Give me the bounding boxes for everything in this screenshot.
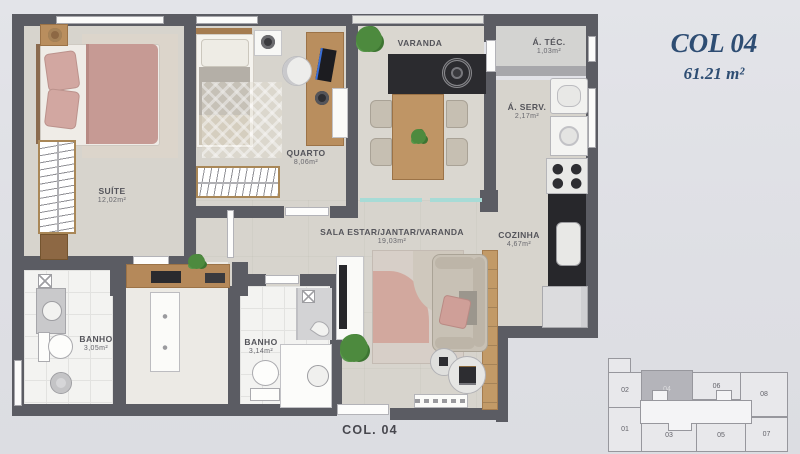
keyplan-notch [608, 358, 631, 373]
quarto-chair [282, 56, 312, 86]
varanda-plant [356, 26, 382, 52]
suite-lamp [48, 28, 62, 42]
keyplan-unit-02: 02 [608, 372, 642, 408]
tv-panel [336, 256, 364, 340]
grill [442, 58, 472, 88]
suite-pillow-1 [44, 50, 81, 92]
room-label-varanda: VARANDA [398, 39, 443, 49]
sideboard-item-1 [151, 271, 181, 283]
suite-duvet [86, 44, 158, 144]
suite-wardrobe-base [40, 234, 68, 260]
shower-head [310, 318, 333, 340]
wardrobe-rod [57, 142, 59, 232]
quarto-chevron-rug [202, 82, 282, 158]
area-servico-door [486, 40, 496, 72]
wall-left [12, 14, 24, 416]
quarto-stool-top [261, 35, 275, 49]
varanda-railing [352, 15, 484, 24]
tank-bowl [557, 85, 581, 107]
plan-bottom-label: COL. 04 [310, 423, 430, 437]
desk-shelf [332, 88, 348, 138]
banho-suite-drain [38, 274, 52, 288]
sala-plant [340, 334, 368, 362]
wall-quarto-bottom-a [196, 206, 284, 218]
dining-chair-3 [446, 100, 468, 128]
entry-door [337, 404, 389, 415]
room-label-cozinha: COZINHA 4,67m² [498, 231, 540, 249]
linen-closet [150, 292, 180, 372]
banho-social-vanity [280, 344, 332, 408]
wall-banho-social-left [228, 286, 240, 408]
big-table-tray [459, 366, 476, 385]
dining-chair-1 [370, 100, 392, 128]
dining-chair-2 [370, 138, 392, 166]
quarto-pillow [201, 39, 249, 67]
suite-nightstand [40, 24, 68, 46]
sala-sideboard [414, 394, 468, 408]
coffee-table-big [448, 356, 486, 394]
banho-social-door [265, 275, 299, 284]
small-table-items [439, 357, 448, 366]
banho-suite-shower-head [50, 372, 72, 394]
keyplan-unit-01: 01 [608, 407, 642, 452]
wall-sala-bottom [390, 408, 496, 420]
suite-wardrobe [38, 140, 76, 234]
wall-varanda-serv-a [484, 14, 496, 42]
room-label-area-servico: Á. SERV. 2,17m² [508, 103, 547, 121]
room-label-banho-suite: BANHO 3,05m² [79, 335, 112, 353]
wall-suite-quarto [184, 14, 196, 256]
wall-banho-suite-right [113, 268, 126, 404]
banho-suite-toilet-bowl [48, 334, 73, 359]
sofa-armrest-top [435, 257, 475, 269]
sliding-glass-right [430, 198, 482, 202]
room-label-suite: SUÍTE 12,02m² [98, 187, 126, 205]
varanda-counter [388, 54, 486, 94]
hall-door [227, 210, 234, 258]
room-label-area-tecnica: Á. TÉC. 1,03m² [532, 38, 565, 56]
right-window-a [588, 36, 596, 62]
quarto-wardrobe [196, 166, 280, 198]
wall-atec-aserv [496, 66, 586, 76]
washing-machine [550, 116, 588, 156]
table-plant [411, 129, 426, 144]
stove [546, 158, 588, 194]
banho-social-toilet-bowl [252, 360, 279, 386]
desk-camera [315, 91, 329, 105]
tv-screen [339, 265, 347, 329]
banho-social-toilet-tank [250, 388, 280, 401]
kitchen-sink [556, 222, 581, 266]
banho-suite-sink [42, 301, 62, 321]
location-keyplan: 02 04 06 08 01 03 05 07 [600, 355, 800, 454]
washer-door [559, 126, 579, 146]
wardrobe-rod [198, 182, 278, 184]
banho-social-shower [296, 288, 332, 340]
kitchen-counter [548, 194, 586, 290]
suite-window [56, 16, 164, 24]
right-window-b [588, 88, 596, 148]
dining-chair-4 [446, 138, 468, 166]
sideboard-item-2 [205, 273, 225, 283]
wall-banho-social-top-a [240, 274, 266, 286]
sliding-glass-left [360, 198, 422, 202]
quarto-stool [254, 30, 282, 56]
desk-monitor [315, 48, 336, 82]
room-label-banho-social: BANHO 3,14m² [244, 338, 277, 356]
quarto-door [285, 207, 329, 216]
unit-title: COL 04 [628, 28, 800, 59]
fridge [542, 286, 588, 328]
room-label-sala: SALA ESTAR/JANTAR/VARANDA 19,03m² [320, 228, 464, 246]
hall-plant [188, 254, 205, 269]
keyplan-corridor-bump-bottom [668, 423, 692, 431]
sofa [432, 254, 488, 352]
hall-sideboard [126, 264, 230, 288]
room-label-quarto: QUARTO 8,06m² [286, 149, 325, 167]
laundry-tank [550, 78, 588, 114]
quarto-window [196, 16, 258, 24]
banho-suite-window [14, 360, 22, 406]
keyplan-corridor [640, 400, 752, 424]
floor-plan-canvas: SUÍTE 12,02m² QUARTO 8,06m² VARANDA Á. T… [0, 0, 800, 454]
banho-social-sink [307, 365, 329, 387]
unit-area: 61.21 m² [628, 64, 800, 84]
dining-table [392, 94, 444, 180]
banho-suite-vanity [36, 288, 66, 334]
suite-pillow-2 [44, 88, 80, 130]
shower-drain [302, 290, 315, 303]
